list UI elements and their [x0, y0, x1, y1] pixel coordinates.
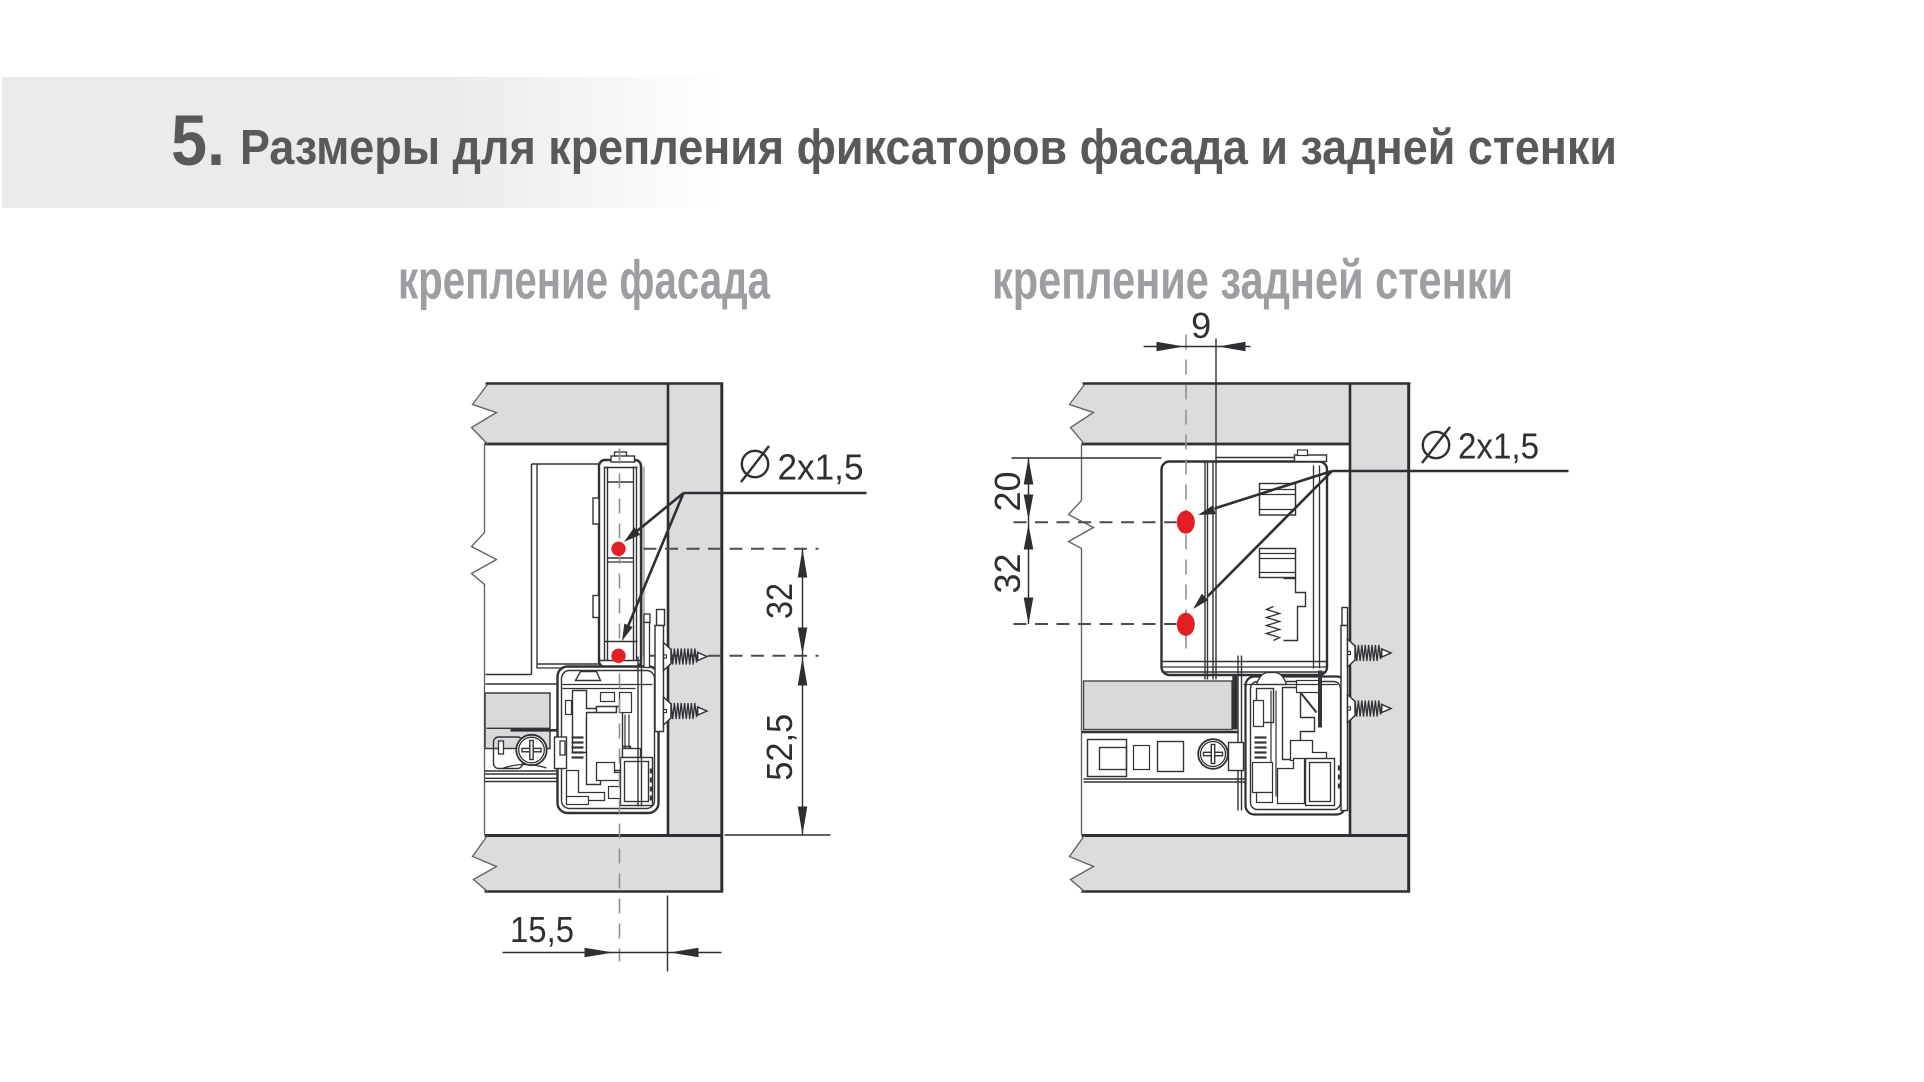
svg-text:2x1,5: 2x1,5 — [778, 447, 864, 488]
svg-text:Размеры для крепления фиксатор: Размеры для крепления фиксаторов фасада … — [240, 120, 1617, 175]
svg-text:32: 32 — [759, 583, 800, 619]
svg-text:15,5: 15,5 — [510, 909, 574, 950]
svg-text:крепление фасада: крепление фасада — [398, 249, 770, 311]
svg-text:20: 20 — [987, 472, 1028, 512]
svg-text:2x1,5: 2x1,5 — [1458, 426, 1539, 467]
svg-text:крепление задней стенки: крепление задней стенки — [992, 249, 1513, 311]
svg-text:32: 32 — [987, 554, 1028, 594]
svg-text:9: 9 — [1191, 305, 1211, 346]
svg-text:5.: 5. — [171, 102, 225, 181]
svg-text:52,5: 52,5 — [759, 714, 800, 781]
